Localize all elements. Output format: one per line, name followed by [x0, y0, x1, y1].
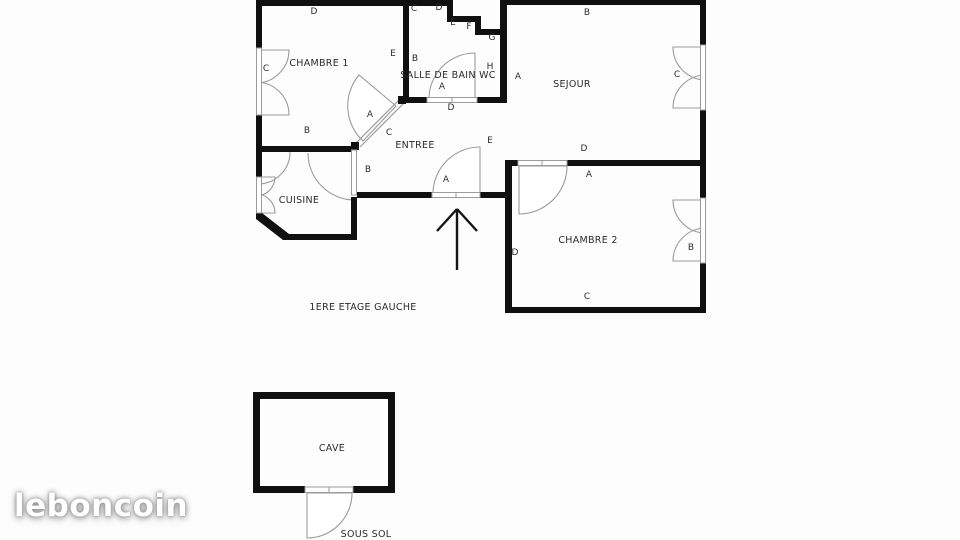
basement-caption: SOUS SOL: [341, 529, 392, 540]
dimension-letter: B: [365, 165, 371, 175]
opening-cuisine-entree: [352, 150, 357, 195]
dimension-letter: B: [304, 126, 310, 136]
door-arc-cuisine-right: [308, 153, 355, 200]
floor-plan-page: D C E A B C C D E F G B A H D A B C D E …: [0, 0, 960, 540]
dimension-letter: E: [487, 136, 493, 146]
room-label-salle-de-bain-wc: SALLE DE BAIN WC: [400, 70, 495, 81]
dimension-letter: D: [448, 103, 455, 113]
room-label-cuisine: CUISINE: [279, 195, 319, 206]
openings: [257, 45, 706, 493]
dimension-letter: B: [584, 8, 590, 18]
dimension-letter: F: [466, 22, 471, 32]
dimension-letter: A: [439, 82, 446, 92]
dimension-letter: D: [436, 3, 443, 13]
window-sejour: [701, 45, 706, 110]
floor-plan: D C E A B C C D E F G B A H D A B C D E …: [0, 0, 960, 540]
entrance-arrow: [437, 209, 477, 270]
room-label-chambre1: CHAMBRE 1: [289, 58, 348, 69]
room-label-chambre2: CHAMBRE 2: [558, 235, 617, 246]
dimension-letter: D: [311, 7, 318, 17]
dimension-letter: C: [386, 128, 392, 138]
door-arc-cuisine-left: [258, 152, 290, 184]
dimension-letter: E: [390, 49, 396, 59]
dimension-letter: A: [515, 72, 522, 82]
room-labels: CHAMBRE 1 SALLE DE BAIN WC SEJOUR ENTREE…: [279, 58, 618, 540]
dimension-letter: C: [263, 64, 269, 74]
room-label-sejour: SEJOUR: [553, 79, 591, 90]
dimension-letter: B: [412, 54, 418, 64]
window-chambre1: [257, 48, 262, 115]
dimension-letter: A: [367, 110, 374, 120]
floor-caption: 1ERE ETAGE GAUCHE: [309, 302, 416, 313]
dimension-letter: A: [443, 175, 450, 185]
room-label-entree: ENTREE: [395, 140, 434, 151]
room-label-cave: CAVE: [319, 443, 345, 454]
window-cuisine: [257, 177, 262, 213]
door-arc-chambre2: [519, 166, 567, 214]
dimension-letter: D: [581, 144, 588, 154]
dimension-letter: A: [586, 170, 593, 180]
dimension-letter: C: [411, 4, 417, 14]
dimension-letter: B: [688, 243, 694, 253]
dimension-letter: E: [450, 18, 456, 28]
door-arc-entree: [433, 147, 480, 193]
dimension-letter: C: [674, 70, 680, 80]
dimension-letter: G: [489, 33, 496, 43]
leboncoin-watermark: leboncoin: [14, 488, 188, 524]
dimension-letter: D: [512, 248, 519, 258]
dimension-letter: C: [584, 292, 590, 302]
window-chambre2: [701, 198, 706, 263]
